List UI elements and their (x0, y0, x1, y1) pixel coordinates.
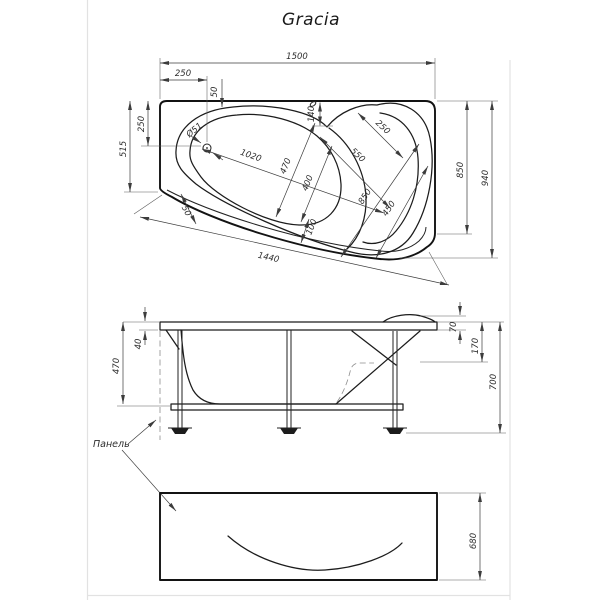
technical-drawing: Gracia Ø51 (0, 0, 600, 600)
dim-1440-line (140, 217, 449, 285)
dim-700-label: 700 (489, 374, 499, 390)
dim-250left-label: 250 (137, 116, 147, 132)
panel-outline (160, 493, 437, 580)
dim-40-label: 40 (134, 339, 144, 350)
panel-leader-down (122, 450, 176, 511)
front-view: 470 40 70 170 700 Панель (93, 302, 506, 511)
dim-140-label: 140 (307, 106, 317, 122)
rim-profile (160, 322, 437, 330)
dim-450-label: 450 (381, 199, 398, 218)
dim-250diag-label: 250 (373, 118, 392, 136)
sheet-edge-lines (88, 0, 511, 600)
panel-curve (228, 536, 402, 570)
backrest-slope (336, 331, 420, 404)
foot (280, 428, 298, 434)
frame-brace (352, 331, 396, 365)
dim-100-label: 100 (304, 218, 319, 237)
panel-label: Панель (93, 439, 130, 450)
witness (134, 195, 162, 214)
dim-250top-label: 250 (175, 69, 191, 79)
top-view: Ø51 1500 250 50 140 (119, 52, 498, 285)
panel-leader-up (128, 420, 156, 444)
dim-170-label: 170 (471, 338, 481, 354)
dim-1020-label: 1020 (239, 148, 263, 165)
drawing-sheet: Gracia Ø51 (0, 0, 600, 600)
dim-70-label: 70 (449, 322, 459, 333)
dim-470-label: 470 (278, 157, 293, 176)
panel-view: 680 (160, 493, 486, 580)
drawing-title: Gracia (282, 10, 340, 30)
dim-1500-label: 1500 (286, 52, 308, 62)
drain-leader-right (213, 153, 223, 160)
bowl-section-line (181, 330, 336, 404)
foot (386, 428, 404, 434)
left-slope (166, 330, 179, 349)
dim-940-label: 940 (481, 170, 491, 186)
dim-50top-label: 50 (210, 87, 220, 98)
dim-400-label: 400 (300, 174, 315, 193)
hidden-bowl-line (337, 363, 374, 402)
dim-680-label: 680 (469, 533, 479, 549)
bowl-floor-edge (190, 114, 341, 225)
headrest-inner-arc (363, 113, 418, 244)
dim-850right-label: 850 (456, 162, 466, 178)
foot (171, 428, 189, 434)
panel-callout: Панель (93, 420, 176, 511)
witness (429, 252, 447, 284)
top-view-dimensions: 1500 250 50 140 250 515 850 940 1440 (119, 52, 498, 285)
drain-dia-label: Ø51 (183, 120, 204, 140)
dim-550-label: 550 (348, 146, 367, 164)
dim-1440-label: 1440 (257, 251, 280, 265)
tub-apron-inner-line (167, 190, 426, 252)
drain-center (206, 147, 208, 149)
dim-515-label: 515 (119, 141, 129, 157)
dim-470f-label: 470 (112, 358, 122, 374)
dim-850diag-label: 850 (357, 187, 374, 206)
seat-edge-arc (329, 128, 366, 249)
